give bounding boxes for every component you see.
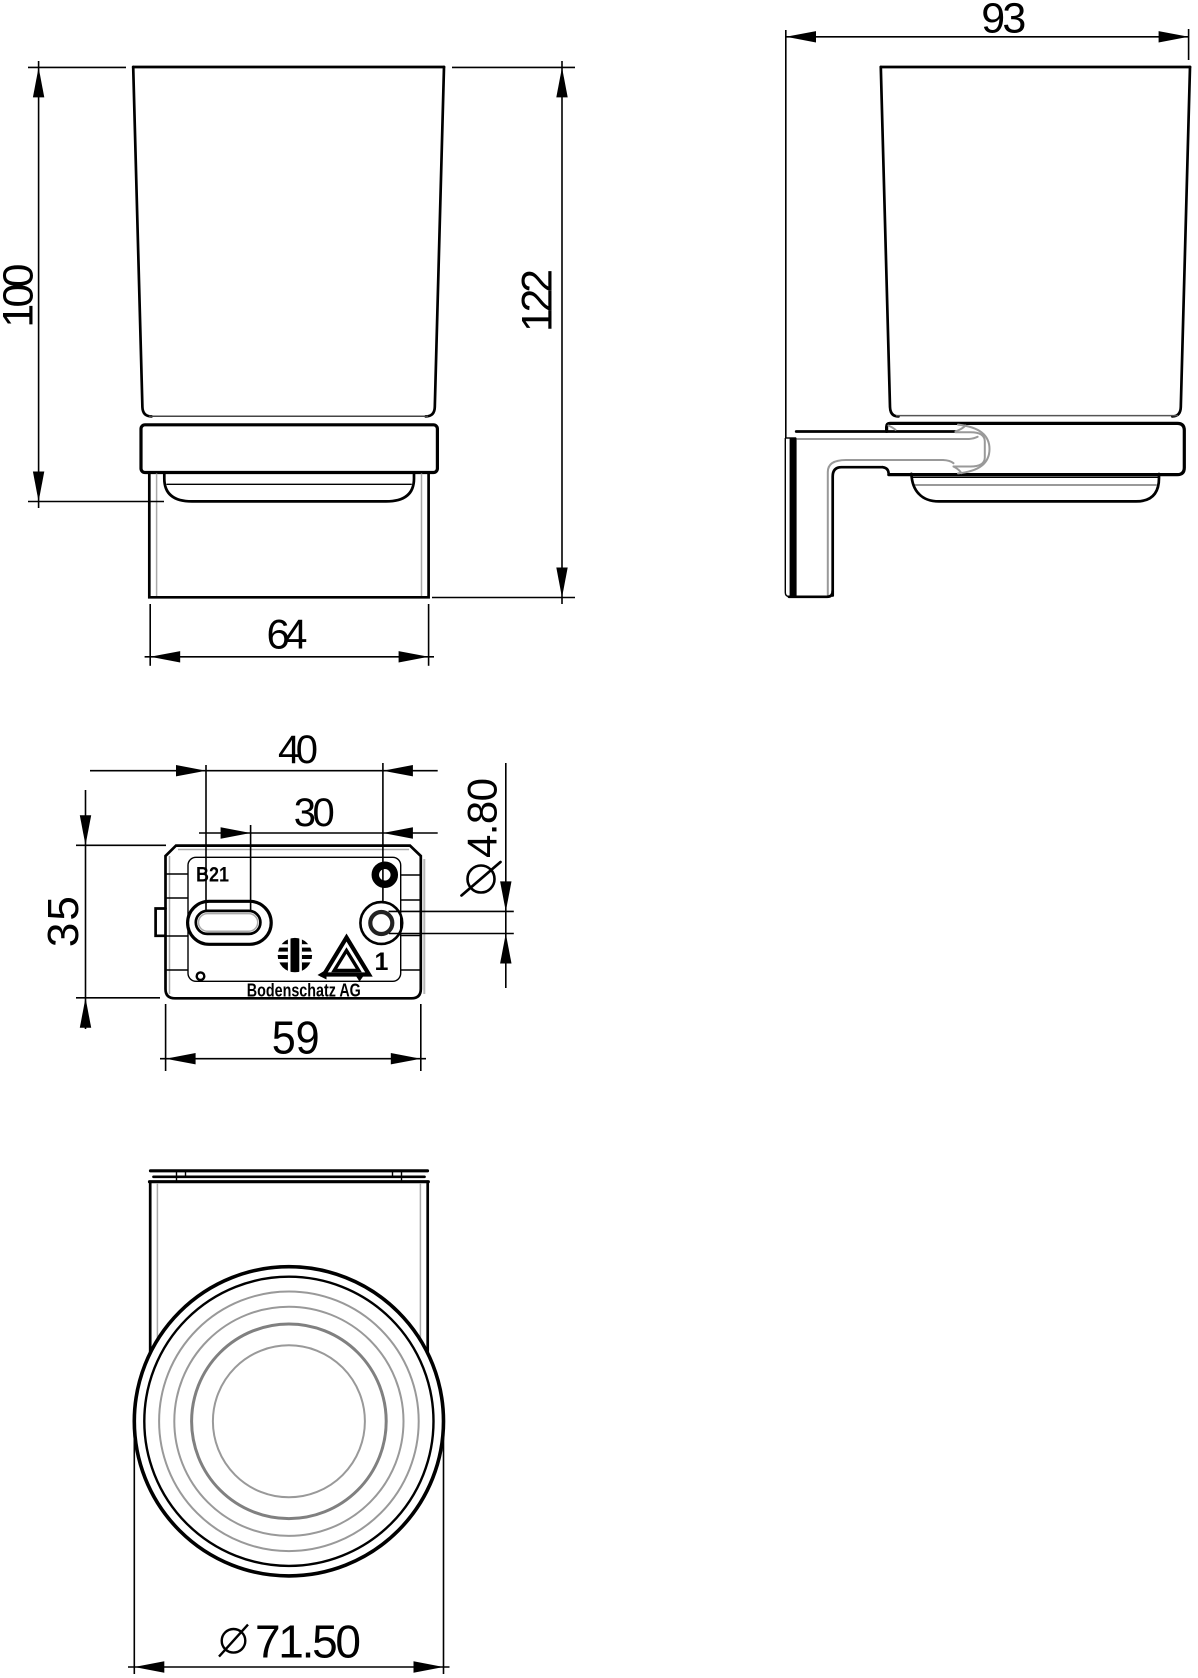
svg-text:59: 59 xyxy=(272,1012,320,1064)
svg-text:93: 93 xyxy=(981,0,1026,43)
svg-text:B21: B21 xyxy=(196,864,229,887)
svg-text:40: 40 xyxy=(278,728,318,772)
svg-text:1: 1 xyxy=(375,948,389,976)
svg-text:4.80: 4.80 xyxy=(459,778,506,858)
svg-text:122: 122 xyxy=(514,269,562,332)
svg-text:100: 100 xyxy=(0,264,43,328)
svg-text:64: 64 xyxy=(267,611,308,658)
svg-text:30: 30 xyxy=(294,791,335,835)
svg-text:Bodenschatz AG: Bodenschatz AG xyxy=(247,981,361,1001)
svg-text:71.50: 71.50 xyxy=(255,1616,361,1668)
